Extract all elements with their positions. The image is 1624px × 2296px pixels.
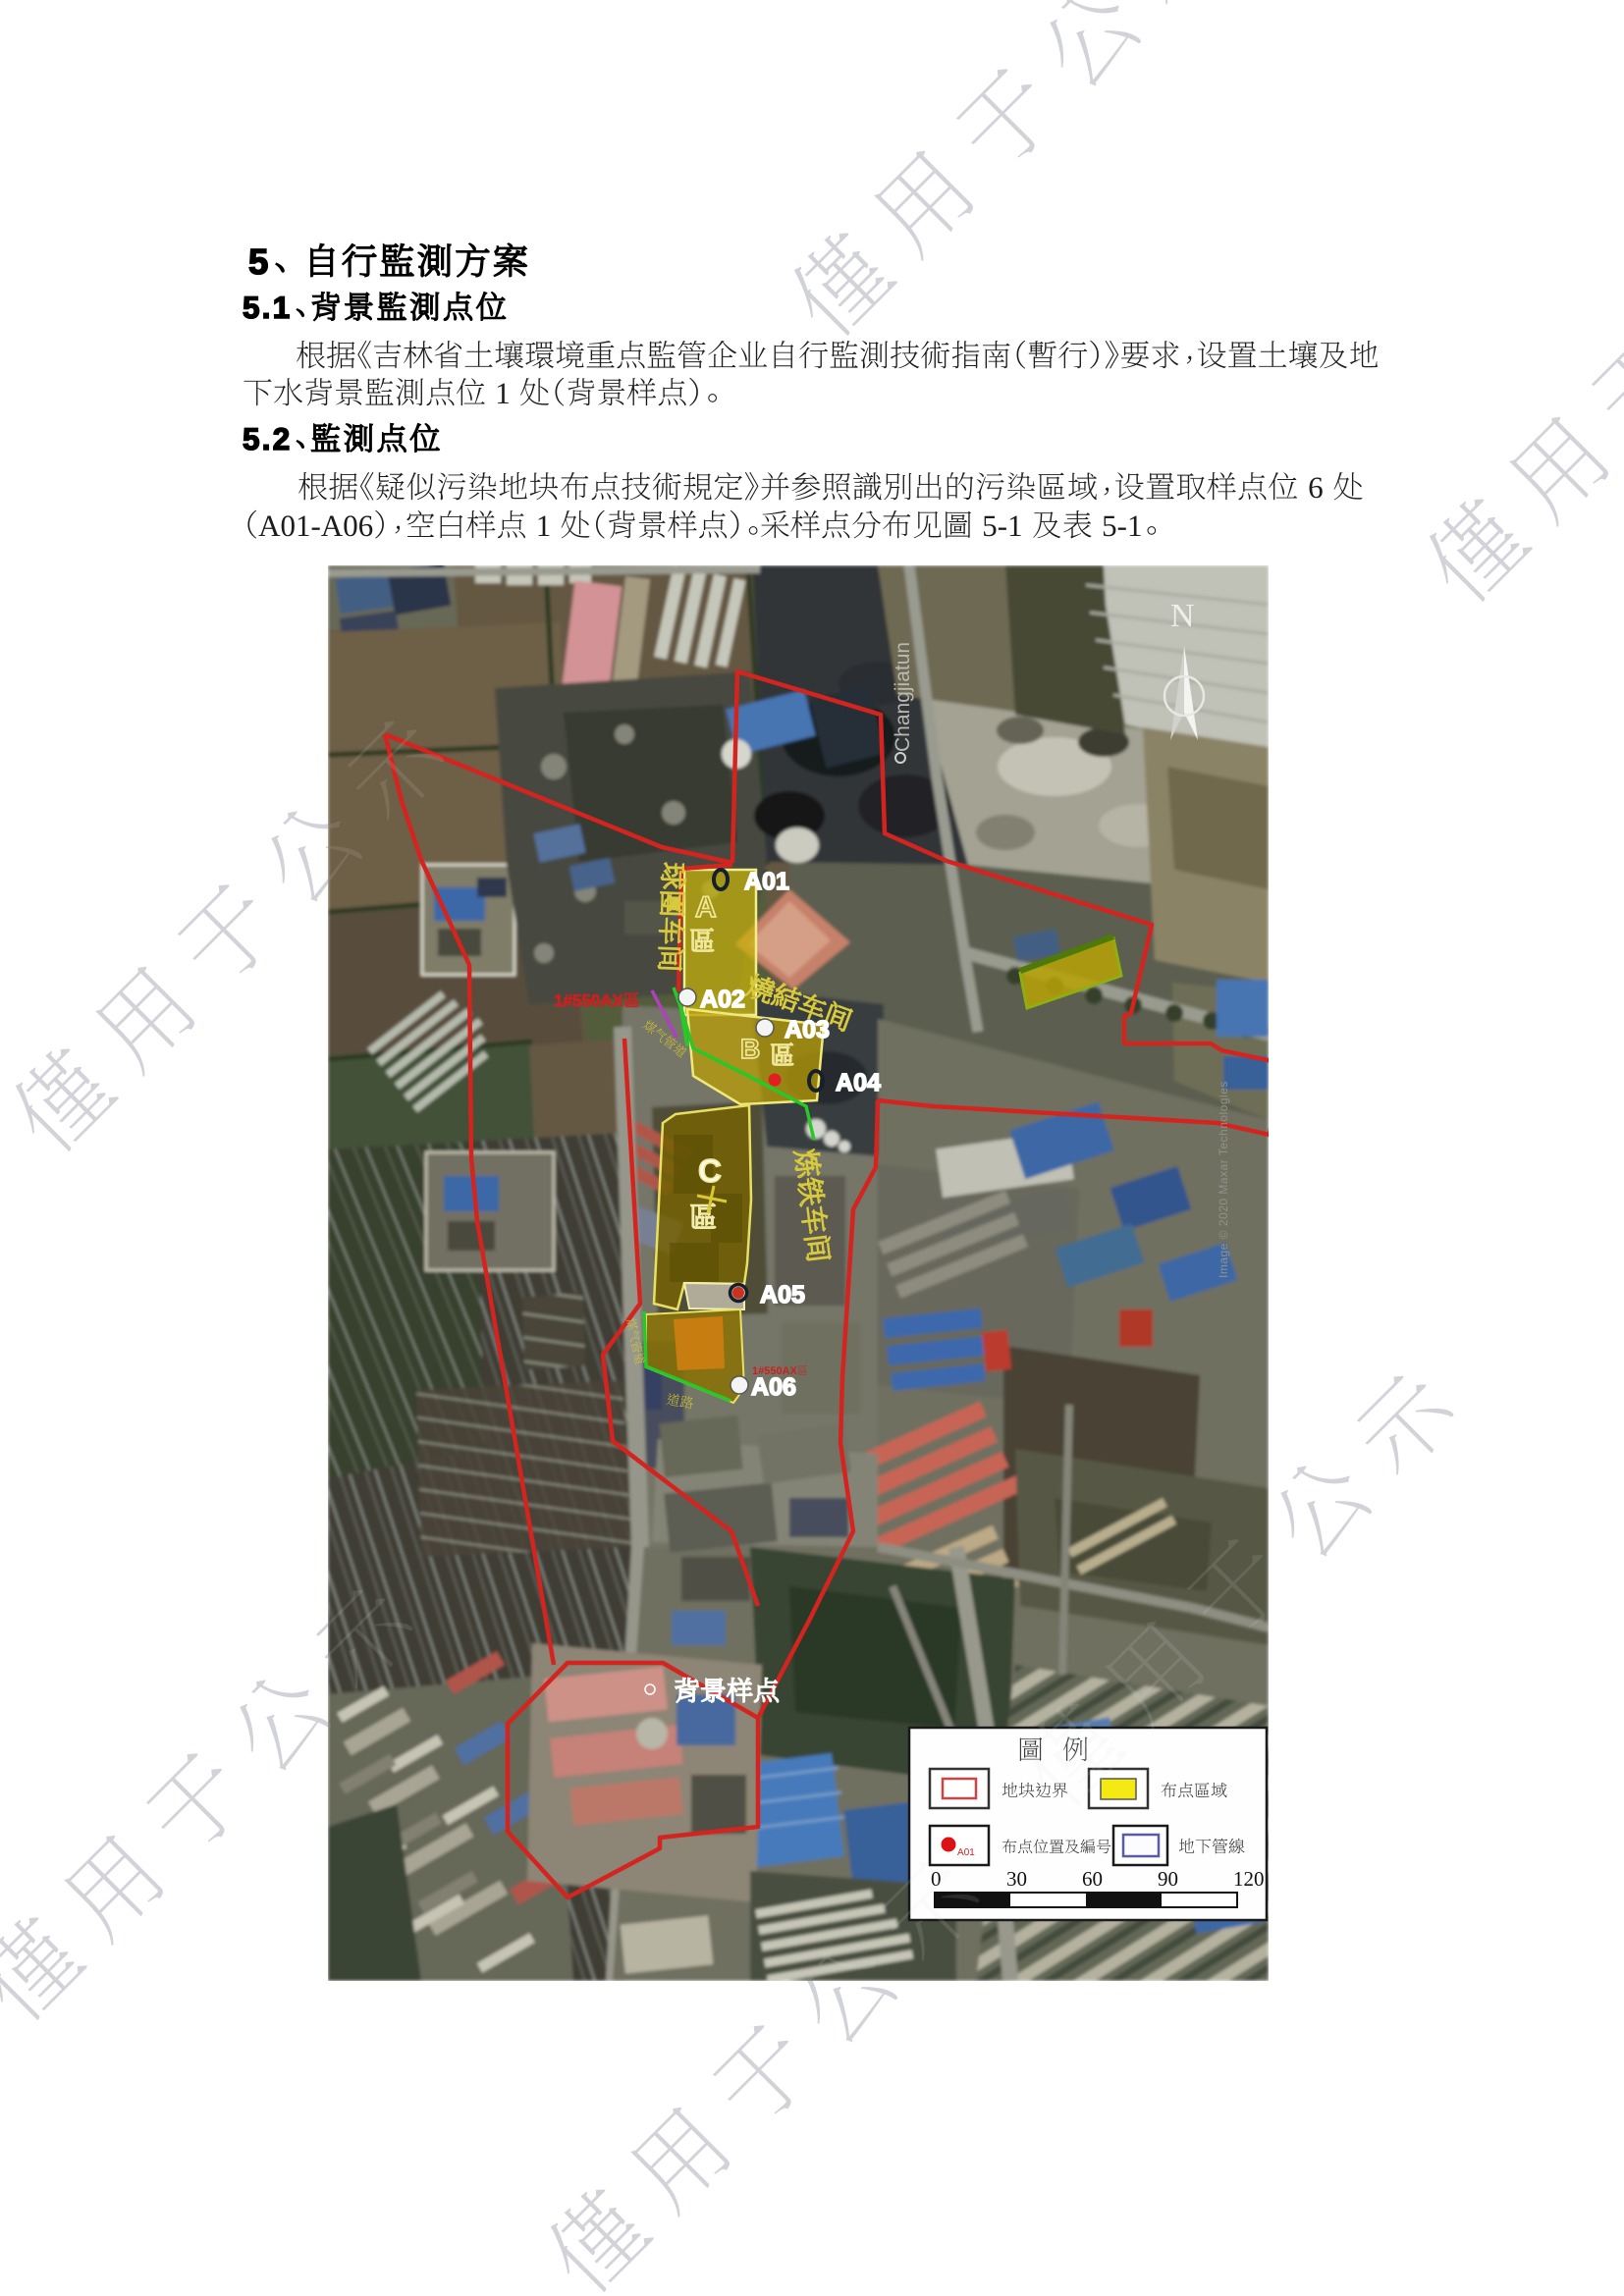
svg-text:Changjiatun: Changjiatun — [892, 642, 914, 752]
svg-text:90: 90 — [1158, 1867, 1178, 1891]
svg-text:Image © 2020 Maxar Technologie: Image © 2020 Maxar Technologies — [1217, 1081, 1230, 1278]
svg-text:N: N — [1170, 598, 1195, 634]
svg-text:30: 30 — [1006, 1867, 1027, 1891]
svg-text:60: 60 — [1082, 1867, 1103, 1891]
svg-text:120: 120 — [1233, 1867, 1265, 1891]
